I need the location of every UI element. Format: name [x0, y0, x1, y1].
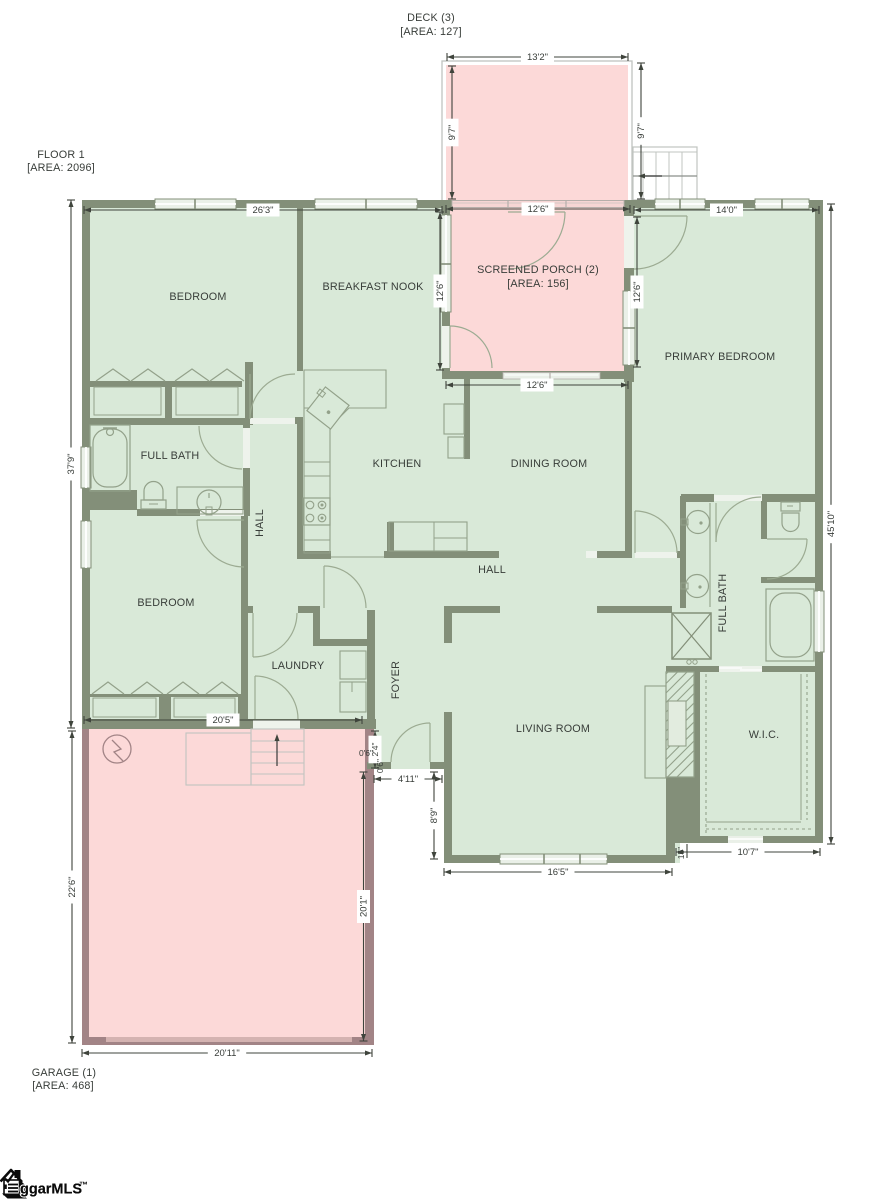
- svg-text:9'7": 9'7": [636, 123, 647, 139]
- svg-text:20'5": 20'5": [212, 715, 233, 726]
- svg-text:FULL BATH: FULL BATH: [141, 450, 200, 462]
- svg-text:4'11": 4'11": [398, 774, 418, 785]
- svg-text:™: ™: [79, 1180, 88, 1190]
- svg-text:20'1": 20'1": [359, 896, 370, 917]
- svg-text:45'10": 45'10": [826, 511, 837, 537]
- svg-text:13'2": 13'2": [527, 52, 548, 63]
- svg-text:8'9": 8'9": [429, 808, 440, 824]
- svg-text:[AREA: 468]: [AREA: 468]: [32, 1080, 94, 1092]
- svg-text:9'7": 9'7": [447, 125, 458, 141]
- svg-text:12'6": 12'6": [632, 281, 643, 302]
- svg-text:FOYER: FOYER: [390, 661, 402, 699]
- svg-text:PRIMARY BEDROOM: PRIMARY BEDROOM: [665, 351, 776, 363]
- svg-text:HALL: HALL: [254, 509, 266, 537]
- svg-text:BEDROOM: BEDROOM: [169, 291, 226, 303]
- svg-text:LIVING ROOM: LIVING ROOM: [516, 723, 590, 735]
- svg-text:BREAKFAST NOOK: BREAKFAST NOOK: [323, 281, 425, 293]
- svg-text:HALL: HALL: [478, 564, 506, 576]
- svg-text:W.I.C.: W.I.C.: [749, 729, 780, 741]
- svg-text:DINING ROOM: DINING ROOM: [511, 458, 588, 470]
- svg-text:LAUNDRY: LAUNDRY: [272, 660, 325, 672]
- svg-text:[AREA: 127]: [AREA: 127]: [400, 26, 462, 38]
- svg-text:12'6": 12'6": [435, 280, 446, 301]
- svg-text:16'5": 16'5": [547, 867, 568, 878]
- svg-text:KITCHEN: KITCHEN: [373, 458, 422, 470]
- svg-text:15": 15": [676, 847, 686, 859]
- svg-text:[AREA: 2096]: [AREA: 2096]: [27, 162, 95, 174]
- svg-text:12'6": 12'6": [527, 204, 548, 215]
- svg-text:0'6": 0'6": [375, 759, 385, 773]
- svg-text:26'3": 26'3": [252, 205, 273, 216]
- svg-text:[AREA: 156]: [AREA: 156]: [507, 278, 569, 290]
- svg-text:FULL BATH: FULL BATH: [717, 574, 729, 633]
- svg-text:BEDROOM: BEDROOM: [137, 597, 194, 609]
- svg-text:14'0": 14'0": [716, 205, 737, 216]
- svg-text:GARAGE (1): GARAGE (1): [32, 1067, 96, 1079]
- svg-text:ggarMLS: ggarMLS: [20, 1182, 82, 1198]
- svg-text:37'9": 37'9": [66, 453, 77, 474]
- svg-text:22'6": 22'6": [67, 876, 78, 897]
- svg-text:0'6": 0'6": [359, 748, 373, 758]
- svg-text:12'6": 12'6": [526, 380, 547, 391]
- svg-text:10'7": 10'7": [737, 847, 758, 858]
- svg-text:DECK (3): DECK (3): [407, 12, 455, 24]
- svg-text:20'11": 20'11": [214, 1048, 240, 1059]
- svg-text:FLOOR 1: FLOOR 1: [37, 149, 85, 161]
- svg-text:SCREENED PORCH (2): SCREENED PORCH (2): [477, 264, 599, 276]
